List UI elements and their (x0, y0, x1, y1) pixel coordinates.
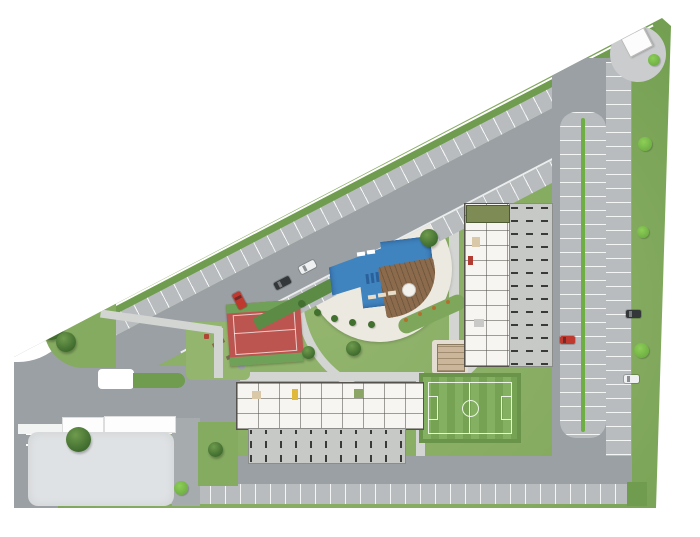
east-edge-stalls (606, 62, 631, 478)
tower1-accent-tan (472, 237, 480, 247)
field-goal-box-left (428, 396, 438, 420)
island-green-median (581, 118, 585, 432)
bush (638, 137, 652, 151)
tower2-accent-green (354, 389, 363, 398)
garden-shrub-orange (432, 306, 436, 310)
bush (634, 343, 649, 358)
tree (208, 442, 223, 457)
path-court-to-entrance (214, 328, 223, 378)
tower1-accent-gray (474, 319, 484, 327)
tower2-accent-yellow (292, 389, 298, 400)
bush (648, 54, 660, 66)
tower2-garage (248, 428, 406, 464)
car-black (626, 310, 641, 318)
tower1 (464, 203, 552, 367)
garage-stall-dashes (511, 205, 551, 365)
site-boundary (0, 0, 700, 537)
tower2-accent-tan (252, 391, 261, 399)
lawn-shrub (298, 300, 305, 307)
tree (420, 229, 438, 247)
soccer-field-border (419, 373, 521, 443)
spa-tub (402, 283, 416, 297)
tower2 (236, 381, 424, 463)
lawn-shrub (331, 315, 338, 322)
vacant-lot (28, 432, 174, 506)
tree (346, 341, 361, 356)
car-red (560, 336, 575, 344)
lawn-shrub (349, 319, 356, 326)
tower1-roof-garden (466, 205, 510, 223)
entrance-median-green (133, 373, 185, 388)
tree (56, 332, 76, 352)
tree (66, 427, 91, 452)
bush (174, 481, 188, 495)
neighbor-building-2 (104, 416, 176, 433)
tower1-garage (509, 203, 553, 367)
site-plan-canvas (0, 0, 700, 537)
garden-shrub-orange (404, 318, 408, 322)
pergola (437, 344, 465, 372)
soccer-field (423, 377, 517, 439)
bottom-right-green-corner (627, 482, 647, 506)
garden-shrub-orange (446, 300, 450, 304)
field-goal-box-right (501, 396, 511, 420)
garage-stall-dashes (250, 430, 404, 462)
lawn-shrub (314, 309, 321, 316)
entrance-median-white (98, 369, 134, 389)
field-center-circle (462, 400, 479, 417)
lawn-shrub (368, 321, 375, 328)
path-above-tower2 (228, 372, 424, 381)
bush (637, 226, 649, 238)
tower2-apartments (236, 382, 424, 430)
tower1-accent-red (468, 256, 473, 265)
tower1-apartments (464, 203, 511, 367)
car-white (624, 375, 639, 383)
garden-shrub-orange (418, 312, 422, 316)
east-parking-island (560, 112, 606, 438)
playground-toy (204, 334, 209, 339)
tree (302, 346, 315, 359)
